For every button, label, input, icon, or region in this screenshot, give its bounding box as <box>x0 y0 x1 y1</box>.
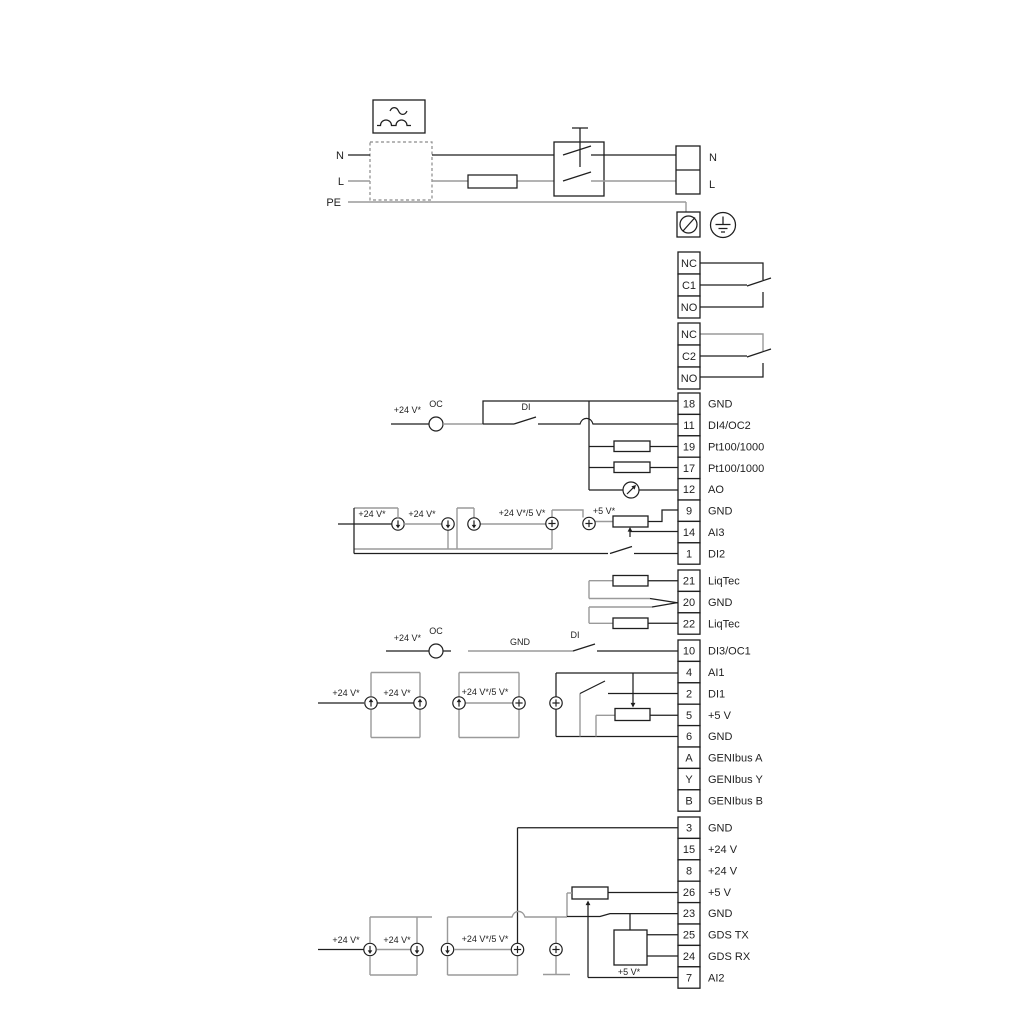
terminal-label: Pt100/1000 <box>708 441 764 453</box>
terminal-number: 21 <box>683 576 695 588</box>
terminal-number: NC <box>681 258 697 270</box>
open-collector-icon <box>429 644 443 658</box>
di4-pt100-ao-circuit <box>391 401 678 498</box>
terminal-label: GENIbus B <box>708 795 763 807</box>
source-24v-icon <box>442 518 454 530</box>
source-24v-icon <box>468 518 480 530</box>
terminal-label: DI3/OC1 <box>708 646 751 658</box>
terminal-number: 1 <box>686 548 692 560</box>
terminal-number: 18 <box>683 399 695 411</box>
terminal-label: Pt100/1000 <box>708 463 764 475</box>
terminal-label: GND <box>708 908 733 920</box>
terminal-number: 4 <box>686 667 692 679</box>
wire-label: N <box>336 150 344 162</box>
terminal-label: AO <box>708 484 724 496</box>
terminal-label: GENIbus A <box>708 753 763 765</box>
wire-label: +24 V*/5 V* <box>499 508 546 518</box>
terminal-block-liqtec: 21LiqTec20GND22LiqTec <box>678 570 740 634</box>
top-line-with-hop <box>448 893 568 917</box>
terminal-label: AI2 <box>708 972 725 984</box>
relay1-no-wire <box>700 292 763 307</box>
terminal-number: NO <box>681 373 698 385</box>
terminal-label: +5 V <box>708 710 732 722</box>
pt100-17-resistor <box>614 462 650 473</box>
terminal-block-10-b: 10DI3/OC14AI12DI15+5 V6GNDAGENIbus AYGEN… <box>678 640 763 811</box>
source-24v-icon <box>392 518 404 530</box>
terminal-label: DI4/OC2 <box>708 420 751 432</box>
potentiometer <box>572 887 608 899</box>
wire-label: DI <box>522 402 531 412</box>
liqtec21-wire <box>648 581 678 603</box>
relay2-terminal-block: NCC2NO <box>678 323 700 389</box>
wire-label: N <box>709 152 717 164</box>
wire-label: +24 V* <box>383 935 411 945</box>
terminal-number: 14 <box>683 527 695 539</box>
wire-label: +24 V* <box>332 688 360 698</box>
source-24v-icon <box>411 943 423 955</box>
wire-label: OC <box>429 626 443 636</box>
terminal-number: Y <box>685 774 693 786</box>
terminal-number: 15 <box>683 844 695 856</box>
relay1-common-wire <box>700 278 771 286</box>
wire-label: +24 V*/5 V* <box>462 687 509 697</box>
terminal-number: 10 <box>683 646 695 658</box>
wire-label: +24 V* <box>332 935 360 945</box>
wiper-arrow-icon <box>586 901 591 906</box>
gnd3-wire <box>518 828 679 943</box>
terminal-label: LiqTec <box>708 618 740 630</box>
wire-label: OC <box>429 399 443 409</box>
wire-label: PE <box>326 197 341 209</box>
terminal-number: 8 <box>686 865 692 877</box>
terminal-number: 9 <box>686 506 692 518</box>
terminal-number: 2 <box>686 688 692 700</box>
source-5v-icon <box>583 517 595 529</box>
relay1-nc-wire <box>700 263 763 280</box>
wire-label: +5 V* <box>618 967 641 977</box>
wire-label: +24 V* <box>394 633 422 643</box>
relay1-terminal-block: NCC1NO <box>678 252 700 318</box>
di3-switch-wire <box>573 644 678 651</box>
terminal-number: 11 <box>683 420 694 432</box>
terminal-number: A <box>685 753 693 765</box>
terminal-number: 24 <box>683 951 695 963</box>
terminal-label: GND <box>708 399 733 411</box>
terminal-label: AI1 <box>708 667 725 679</box>
terminal-number: B <box>685 795 692 807</box>
terminal-label: +5 V <box>708 887 732 899</box>
gds-sensor-box <box>614 930 647 965</box>
pot-to-gnd9-wire <box>648 510 678 522</box>
potentiometer <box>613 516 648 527</box>
terminal-number: 22 <box>683 618 695 630</box>
wire-label: +24 V* <box>394 405 422 415</box>
terminal-label: GND <box>708 506 733 518</box>
gds-tx-rx-wires <box>647 935 678 956</box>
terminal-number: 26 <box>683 887 695 899</box>
ai1-di1-circuit <box>318 673 678 738</box>
terminal-label: AI3 <box>708 527 725 539</box>
open-collector-icon <box>429 417 443 431</box>
source-5v-icon <box>550 697 562 709</box>
source-24v-icon <box>365 697 377 709</box>
source-24v-icon <box>441 943 453 955</box>
liqtec21-resistor <box>613 576 648 587</box>
wire-label: +24 V* <box>358 509 386 519</box>
source-24v-5v-icon <box>513 697 525 709</box>
gds-ai2-circuit <box>318 828 678 978</box>
wiper-arrow-icon <box>631 703 636 708</box>
cell2-bracket <box>459 673 519 738</box>
terminal-number: 17 <box>683 463 695 475</box>
terminal-number: 3 <box>686 823 692 835</box>
terminal-number: NO <box>681 302 698 314</box>
terminal-label: LiqTec <box>708 576 740 588</box>
floating-labels: NLPENL+24 V*OCDI+24 V*+24 V*+24 V*/5 V*+… <box>326 150 717 977</box>
gnd23-wire <box>567 914 678 917</box>
mains-section <box>348 100 736 238</box>
liqtec22-wire <box>648 603 678 624</box>
cell1-bracket <box>371 673 420 738</box>
wire-label: L <box>338 176 344 188</box>
wire-label: DI <box>571 630 580 640</box>
di2-switch-wire <box>354 547 678 554</box>
wire-pe <box>348 202 686 212</box>
liqtec-circuit <box>589 576 678 629</box>
source-24v-5v-icon <box>511 943 523 955</box>
source-24v-5v-icon <box>546 517 558 529</box>
wiring-diagram: NCC1NO NCC2NO 18GND11DI4/OC219Pt100/1000… <box>0 0 1024 1024</box>
di1-switch-wire <box>580 681 678 694</box>
potentiometer <box>615 709 650 721</box>
terminal-number: 7 <box>686 972 692 984</box>
c5-stub-rail <box>556 673 678 737</box>
terminal-number: 5 <box>686 710 692 722</box>
wire-label: +24 V* <box>408 509 436 519</box>
relay1-circuit <box>700 263 771 307</box>
wire-label: +24 V* <box>383 688 411 698</box>
terminal-label: GDS RX <box>708 951 751 963</box>
wiring-diagram-page: NCC1NO NCC2NO 18GND11DI4/OC219Pt100/1000… <box>0 0 1024 1024</box>
terminal-label: GND <box>708 823 733 835</box>
relay2-circuit <box>700 334 771 377</box>
terminal-label: DI2 <box>708 548 725 560</box>
terminal-number: 19 <box>683 441 695 453</box>
pt100-19-resistor <box>614 441 650 452</box>
source-5v-icon <box>550 943 562 955</box>
terminal-label: GND <box>708 731 733 743</box>
source-24v-icon <box>414 697 426 709</box>
terminal-block-18-1: 18GND11DI4/OC219Pt100/100017Pt100/100012… <box>678 393 764 564</box>
filter-box <box>370 142 432 200</box>
analog-output-meter-icon <box>623 482 639 498</box>
terminal-number: 25 <box>683 930 695 942</box>
terminal-number: 23 <box>683 908 695 920</box>
source-24v-icon <box>453 697 465 709</box>
terminal-label: GDS TX <box>708 930 749 942</box>
di3-circuit <box>386 644 678 658</box>
terminal-label: GENIbus Y <box>708 774 763 786</box>
earth-icon <box>711 213 736 238</box>
wire-label: +5 V* <box>593 506 616 516</box>
di1-pot-gray-wires <box>580 694 615 737</box>
source-24v-icon <box>364 943 376 955</box>
liqtec22-resistor <box>613 618 648 629</box>
terminal-number: C1 <box>682 280 696 292</box>
terminal-label: DI1 <box>708 688 725 700</box>
terminal-number: C2 <box>682 351 696 363</box>
terminal-number: 20 <box>683 597 695 609</box>
terminal-block-3-7: 3GND15+24 V8+24 V26+5 V23GND25GDS TX24GD… <box>678 817 751 988</box>
relay2-common-wire <box>700 349 771 357</box>
terminal-number: NC <box>681 329 697 341</box>
terminal-label: +24 V <box>708 865 738 877</box>
terminal-number: 6 <box>686 731 692 743</box>
wire-label: +24 V*/5 V* <box>462 934 509 944</box>
terminal-label: +24 V <box>708 844 738 856</box>
fuse <box>468 175 517 188</box>
wire-label: GND <box>510 637 531 647</box>
relay2-no-wire <box>700 363 763 377</box>
relay2-nc-wire <box>700 334 763 351</box>
wire-label: L <box>709 179 715 191</box>
terminal-number: 12 <box>683 484 695 496</box>
mains-symbol-box <box>373 100 425 133</box>
gnd18-wire <box>483 401 678 424</box>
di4-switch-wire <box>483 417 678 424</box>
terminal-label: GND <box>708 597 733 609</box>
